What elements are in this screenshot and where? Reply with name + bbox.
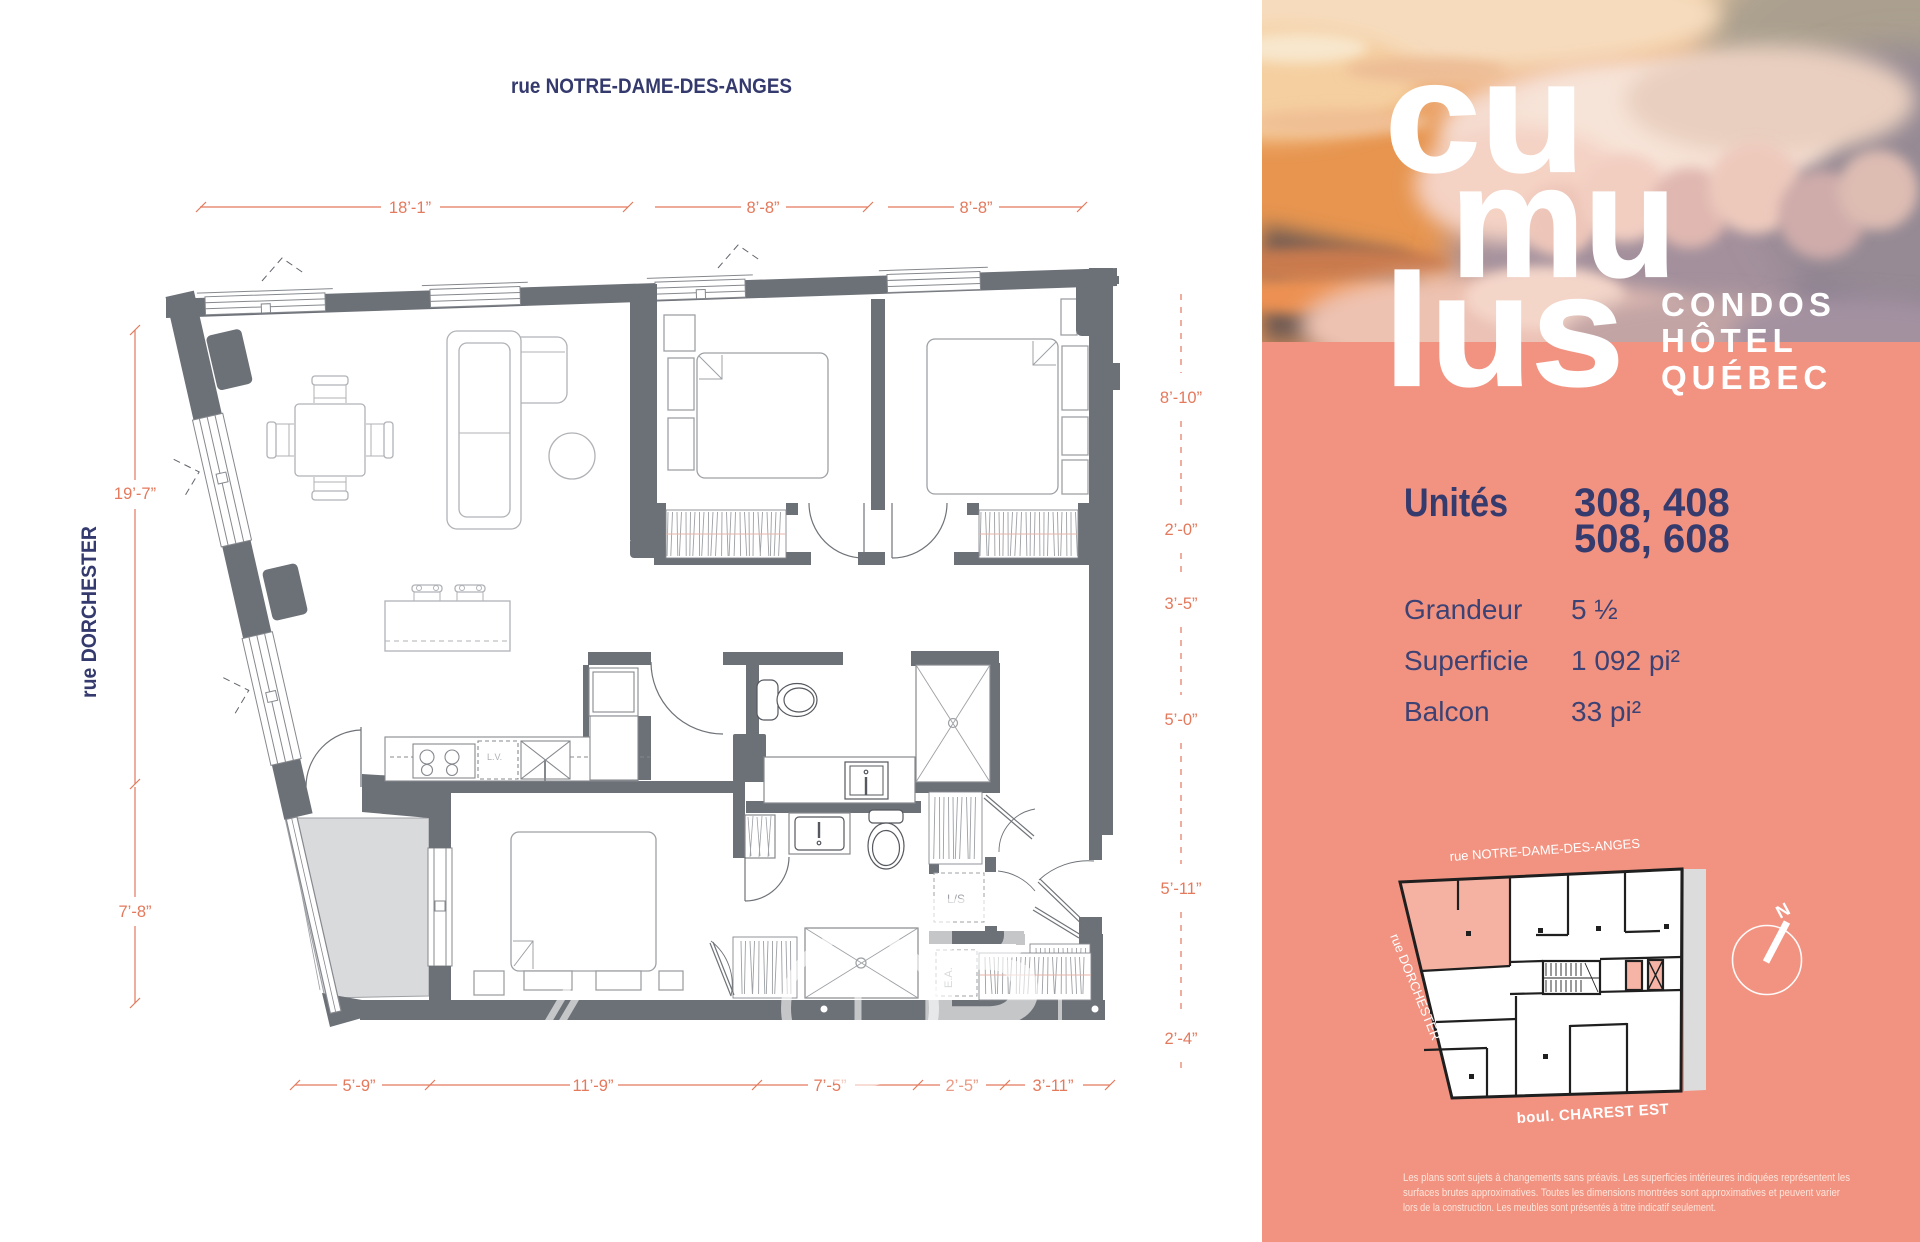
svg-text:2’-0”: 2’-0” — [1164, 521, 1197, 539]
svg-text:rue DORCHESTER: rue DORCHESTER — [77, 526, 101, 698]
svg-text:L.V.: L.V. — [487, 752, 502, 762]
svg-text:QUÉBEC: QUÉBEC — [1661, 359, 1832, 396]
svg-text:8’-10”: 8’-10” — [1160, 389, 1202, 407]
svg-text:lors de la construction. Les m: lors de la construction. Les meubles son… — [1403, 1202, 1716, 1214]
svg-text:5’-9”: 5’-9” — [342, 1077, 375, 1095]
svg-text:11’-9”: 11’-9” — [573, 1077, 614, 1095]
svg-text:Grandeur: Grandeur — [1404, 594, 1522, 625]
svg-text:8’-8”: 8’-8” — [746, 199, 779, 217]
svg-text:1 092 pi²: 1 092 pi² — [1571, 645, 1680, 676]
svg-text:Les plans sont sujets à change: Les plans sont sujets à changements sans… — [1403, 1172, 1850, 1184]
svg-text:lus: lus — [1384, 243, 1624, 419]
svg-text:7’-8”: 7’-8” — [118, 903, 151, 921]
svg-text:5’-11”: 5’-11” — [1161, 880, 1202, 898]
svg-text:33 pi²: 33 pi² — [1571, 696, 1641, 727]
svg-text:3’-11”: 3’-11” — [1033, 1077, 1074, 1095]
svg-text:Superficie: Superficie — [1404, 645, 1529, 676]
svg-text:B: B — [913, 860, 1047, 1066]
svg-text:Balcon: Balcon — [1404, 696, 1490, 727]
svg-text:3’-5”: 3’-5” — [1164, 595, 1197, 613]
svg-text:18’-1”: 18’-1” — [389, 199, 431, 217]
svg-text:19’-7”: 19’-7” — [114, 485, 156, 503]
svg-text:CONDOS: CONDOS — [1661, 286, 1836, 323]
svg-text:Unités: Unités — [1404, 481, 1508, 525]
svg-text:5 ½: 5 ½ — [1571, 594, 1618, 625]
svg-text:5’-0”: 5’-0” — [1164, 711, 1197, 729]
svg-text:8’-8”: 8’-8” — [959, 199, 992, 217]
svg-text:508, 608: 508, 608 — [1574, 517, 1730, 561]
svg-text:2’-5”: 2’-5” — [945, 1077, 978, 1095]
svg-text:2’-4”: 2’-4” — [1164, 1030, 1197, 1048]
svg-text:surfaces brutes approximatives: surfaces brutes approximatives. Toutes l… — [1403, 1187, 1840, 1199]
svg-text:HÔTEL: HÔTEL — [1661, 321, 1798, 359]
svg-text:rue NOTRE-DAME-DES-ANGES: rue NOTRE-DAME-DES-ANGES — [511, 74, 792, 98]
